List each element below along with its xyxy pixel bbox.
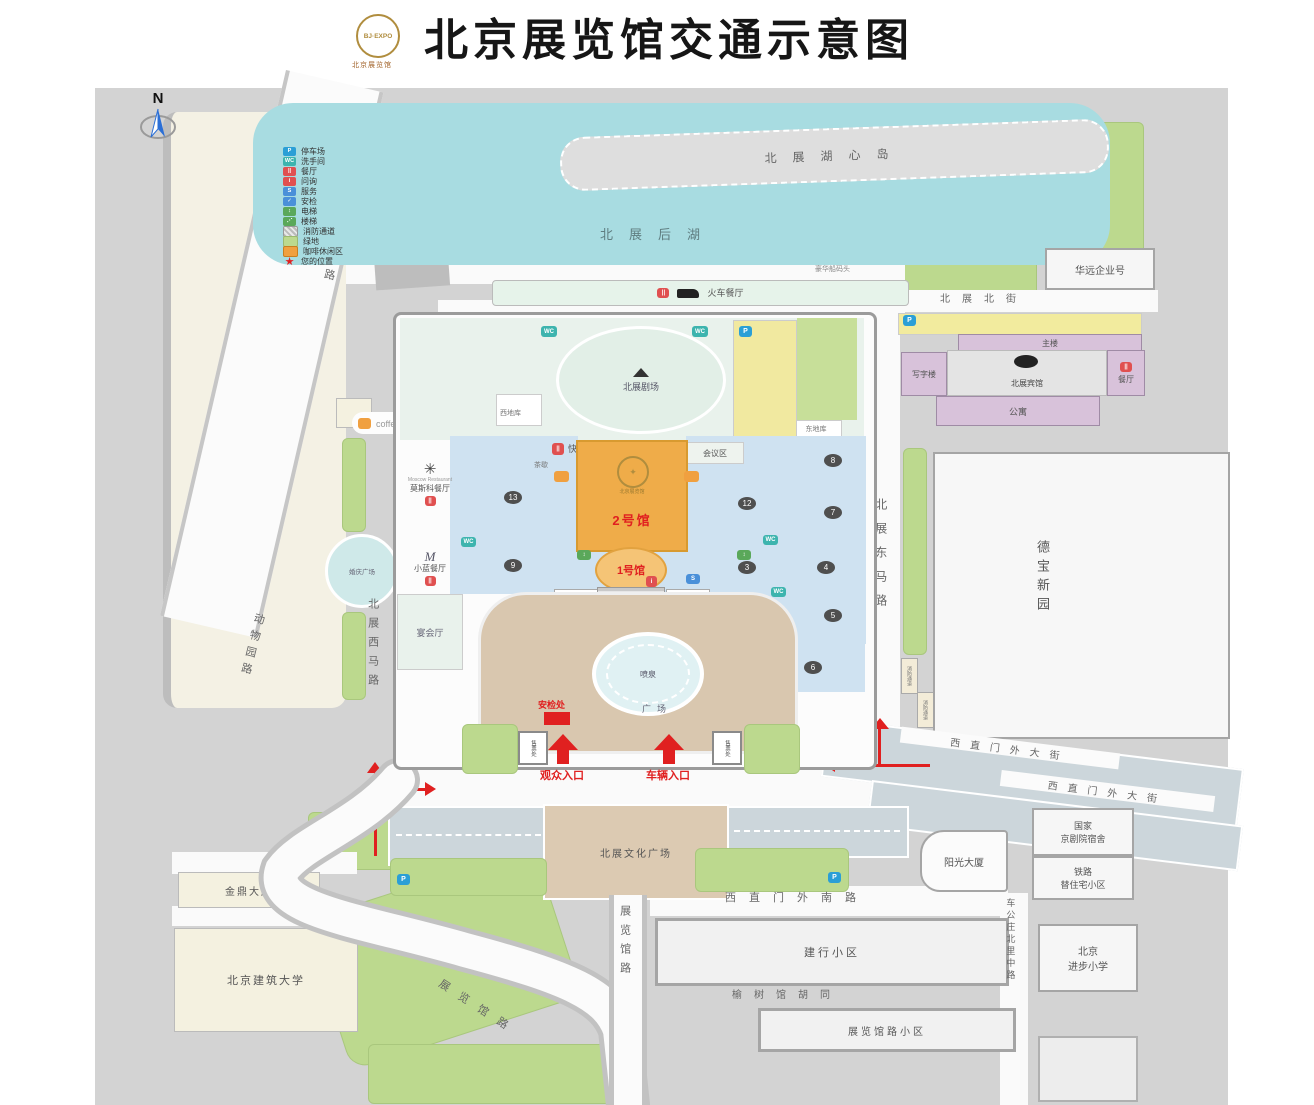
restaurant-icon: ||	[552, 443, 564, 455]
hotel-logo-icon	[1014, 355, 1038, 368]
parking-icon: P	[828, 872, 841, 883]
moscow-restaurant-label: 莫斯科餐厅	[398, 483, 462, 494]
legend-item-green: 绿地	[283, 236, 319, 246]
theater-roof-icon	[633, 368, 649, 377]
debao-xinyuan-label: 德宝新园	[1033, 540, 1052, 616]
beizhan-theater: 北展剧场	[556, 326, 726, 434]
legend: P停车场 WC洗手间 ||餐厅 i问询 S服务 ✓安检 ↕电梯 ⋰楼梯 消防通道…	[140, 146, 260, 266]
restaurant-icon: ||	[425, 496, 436, 506]
green-area	[797, 318, 857, 420]
green-strip	[342, 438, 366, 532]
green-area-icon	[283, 236, 298, 247]
security-check-box	[544, 712, 570, 725]
xiaolan-restaurant: M 小蓝餐厅 ||	[398, 550, 462, 596]
security-check-label: 安检处	[538, 700, 565, 710]
beizhan-north-street-label: 北展北街	[940, 294, 1028, 306]
zhanlanguan-road-curve	[240, 750, 680, 1105]
unlabeled-block	[1038, 1036, 1138, 1102]
star-icon: ★	[283, 257, 296, 266]
hotel-restaurant: || 餐厅	[1107, 350, 1145, 396]
train-restaurant-label: 火车餐厅	[707, 288, 743, 298]
fire-lane-sign: 消防通道	[917, 692, 934, 728]
bjexpo-logo: BJ·EXPO 北京展览馆	[348, 12, 404, 84]
plaza-label: 广场	[642, 704, 672, 714]
office-building-label: 写字楼	[912, 369, 936, 380]
beizhan-hotel-label: 北展宾馆	[948, 379, 1106, 388]
gate-green	[744, 724, 800, 774]
yushuguan-hutong-label: 榆树馆胡同	[732, 990, 842, 1002]
wc-icon: WC	[541, 326, 557, 337]
hall-badge-7: 7	[824, 506, 842, 519]
hall2-label: 2号馆	[578, 514, 686, 529]
service-icon: S	[283, 187, 296, 196]
xiaolan-restaurant-label: 小蓝餐厅	[398, 563, 462, 574]
direction-arrow	[878, 728, 881, 764]
railway-community: 铁路 替住宅小区	[1032, 856, 1134, 900]
debao-xinyuan: 德宝新园	[933, 452, 1230, 739]
fire-lane-icon	[283, 226, 298, 237]
restaurant-icon: ||	[657, 288, 669, 298]
inquiry-icon: i	[646, 576, 657, 587]
train-restaurant-strip: || 火车餐厅	[492, 280, 909, 306]
huayuan-building: 华远企业号	[1045, 248, 1155, 290]
legend-item-elevator: ↕电梯	[283, 206, 317, 216]
legend-item-fire-lane: 消防通道	[283, 226, 335, 236]
hall-badge-12: 12	[738, 497, 756, 510]
jianhang-label: 建行小区	[804, 944, 860, 960]
legend-item-stairs: ⋰楼梯	[283, 216, 317, 226]
hotel-restaurant-label: 餐厅	[1118, 374, 1134, 385]
apartment-building: 公寓	[936, 396, 1100, 426]
ticket-office-label: 售票处	[723, 740, 731, 757]
hall-badge-8: 8	[824, 454, 842, 467]
main-building-label: 主楼	[1042, 338, 1058, 349]
fire-lane-sign: 消防通道	[901, 658, 918, 694]
restaurant-icon: ||	[1120, 362, 1132, 372]
hall-badge-9: 9	[504, 559, 522, 572]
parking-icon: P	[739, 326, 752, 337]
xiaolan-logo-icon: M	[398, 550, 462, 563]
theater-label: 北展剧场	[623, 380, 659, 393]
east-garage: 东地库	[790, 420, 842, 437]
compass: N	[138, 90, 178, 142]
parking-garage-area	[733, 320, 797, 442]
beizhan-west-road-label: 北展西马路	[366, 598, 379, 693]
ticket-office: 售票处	[518, 731, 548, 765]
legend-item-inquiry: i问询	[283, 176, 317, 186]
legend-item-parking: P停车场	[283, 146, 325, 156]
wc-icon: WC	[461, 537, 476, 547]
service-icon: S	[686, 574, 700, 584]
hall-2: ✦ 北京展览馆 2号馆	[576, 440, 688, 552]
jianhang-community: 建行小区	[655, 918, 1009, 986]
sunshine-tower-label: 阳光大厦	[944, 854, 984, 869]
hall2-crest-icon: ✦	[617, 456, 649, 488]
jinbu-school: 北京 进步小学	[1038, 924, 1138, 992]
coffee-icon	[554, 471, 569, 482]
east-garage-label: 东地库	[806, 424, 827, 434]
compass-icon	[138, 107, 178, 143]
hall-badge-5: 5	[824, 609, 842, 622]
compass-n-label: N	[138, 90, 178, 107]
railway-line2: 替住宅小区	[1060, 878, 1105, 891]
green-strip	[342, 612, 366, 700]
vehicle-entrance-label: 车辆入口	[646, 770, 690, 783]
green-area	[695, 848, 849, 892]
map-canvas: BJ·EXPO 北京展览馆 北京展览馆交通示意图 北京动物园 动物园路 动物园路…	[0, 0, 1314, 1105]
elevator-icon: ↕	[737, 550, 751, 560]
restaurant-icon: ||	[425, 576, 436, 586]
zhanlanguan-road-label-vert: 展览馆路	[618, 905, 631, 981]
railway-line1: 铁路	[1074, 865, 1092, 878]
wc-icon: WC	[692, 326, 708, 337]
inquiry-icon: i	[283, 177, 296, 186]
parking-icon: P	[903, 315, 916, 326]
conference-area-label: 会议区	[703, 448, 727, 459]
ticket-office: 售票处	[712, 731, 742, 765]
parking-icon: P	[283, 147, 296, 156]
moscow-restaurant: ✳ Moscow Restaurant 莫斯科餐厅 ||	[398, 462, 462, 522]
school-line2: 进步小学	[1068, 958, 1108, 973]
opera-dorm-line1: 国家	[1074, 819, 1092, 832]
wharf-label: 豪华船码头	[815, 266, 850, 274]
logo-caption: 北京展览馆	[352, 62, 392, 70]
hall-badge-3: 3	[738, 561, 756, 574]
hall-badge-6: 6	[804, 661, 822, 674]
school-line1: 北京	[1078, 943, 1098, 958]
security-icon: ✓	[283, 197, 296, 206]
elevator-icon: ↕	[577, 550, 591, 560]
hall-badge-4: 4	[817, 561, 835, 574]
green-strip	[903, 448, 927, 655]
apartment-label: 公寓	[1009, 405, 1027, 418]
wedding-plaza: 婚庆广场	[325, 534, 399, 608]
banquet-hall: 宴会厅	[397, 594, 463, 670]
hall1-label: 1号馆	[617, 562, 645, 578]
vehicle-entrance-arrow	[654, 734, 684, 766]
page-title: 北京展览馆交通示意图	[424, 16, 914, 67]
parking-strip	[898, 313, 1142, 335]
gate-green	[462, 724, 518, 774]
opera-dormitory: 国家 京剧院宿舍	[1032, 808, 1134, 856]
snowflake-icon: ✳	[398, 462, 462, 477]
conference-area: 会议区	[686, 442, 744, 464]
sunshine-tower: 阳光大厦	[920, 830, 1008, 892]
legend-label: 您的位置	[301, 256, 333, 267]
ticket-office-label: 售票处	[529, 740, 537, 757]
fountain-label: 喷泉	[640, 669, 656, 680]
zhanlanguan-community: 展览馆路小区	[758, 1008, 1016, 1052]
west-garage-label: 西地库	[500, 410, 521, 418]
legend-item-restroom: WC洗手间	[283, 156, 325, 166]
opera-dorm-line2: 京剧院宿舍	[1060, 832, 1105, 845]
office-building: 写字楼	[901, 352, 947, 396]
bjexpo-crest-icon: BJ·EXPO	[356, 14, 400, 58]
zhanlanguan-community-label: 展览馆路小区	[848, 1023, 926, 1038]
hall-badge-13: 13	[504, 491, 522, 504]
wc-icon: WC	[283, 157, 296, 166]
hall2-crest-caption: 北京展览馆	[578, 490, 686, 496]
banquet-hall-label: 宴会厅	[416, 626, 443, 639]
legend-item-your-location: ★您的位置	[283, 256, 333, 266]
stairs-icon: ⋰	[283, 217, 296, 226]
tea-break-label: 茶歇	[534, 462, 548, 470]
restaurant-icon: ||	[283, 167, 296, 176]
visitor-entrance-arrow	[548, 734, 578, 766]
wc-icon: WC	[771, 587, 786, 597]
lake-label: 北展后湖	[600, 228, 716, 243]
xizhimen-south-road-label: 西直门外南路	[725, 892, 869, 905]
elevator-icon: ↕	[283, 207, 296, 216]
legend-item-security: ✓安检	[283, 196, 317, 206]
coffee-icon	[358, 418, 371, 429]
legend-item-restaurant: ||餐厅	[283, 166, 317, 176]
train-icon	[677, 289, 699, 298]
wedding-plaza-label: 婚庆广场	[349, 566, 375, 576]
chegongzhuang-road-label: 车公庄北里中路	[1005, 898, 1015, 982]
huayuan-label: 华远企业号	[1075, 262, 1125, 277]
beizhan-hotel: 北展宾馆	[947, 350, 1107, 396]
legend-item-service: S服务	[283, 186, 317, 196]
visitor-entrance-label: 观众入口	[540, 770, 584, 783]
wc-icon: WC	[763, 535, 778, 545]
coffee-icon	[684, 471, 699, 482]
